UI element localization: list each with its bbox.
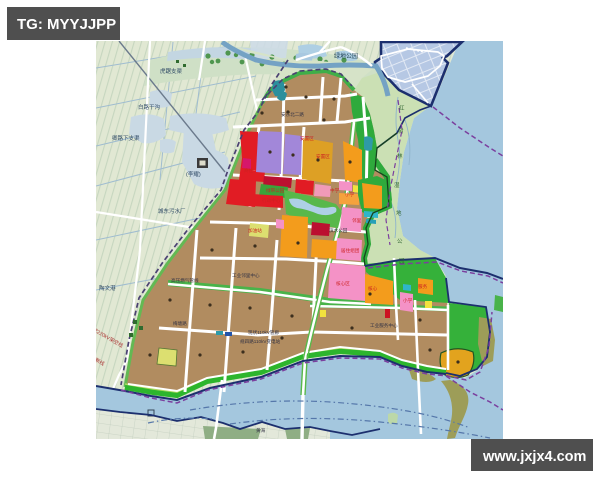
svg-text:现状110kV管廊: 现状110kV管廊 xyxy=(248,329,279,336)
svg-text:小学: 小学 xyxy=(403,297,413,304)
svg-text:虎踞支渠: 虎踞支渠 xyxy=(160,67,183,75)
svg-text:红: 红 xyxy=(399,104,405,112)
svg-text:TG: MYYJJPP: TG: MYYJJPP xyxy=(17,16,116,33)
svg-text:园: 园 xyxy=(399,258,405,265)
svg-text:黄海: 黄海 xyxy=(256,427,266,434)
svg-text:白路干沟: 白路干沟 xyxy=(138,103,161,111)
svg-text:行政中心: 行政中心 xyxy=(262,197,281,204)
svg-text:加油站: 加油站 xyxy=(248,227,262,234)
svg-text:工业邻里中心: 工业邻里中心 xyxy=(232,272,260,279)
svg-text:核心: 核心 xyxy=(368,285,378,292)
svg-text:陶文港: 陶文港 xyxy=(99,284,116,292)
svg-text:高压燃气管线: 高压燃气管线 xyxy=(171,277,199,284)
svg-text:湿: 湿 xyxy=(394,181,400,189)
svg-text:公: 公 xyxy=(397,239,403,245)
svg-text:中学: 中学 xyxy=(330,187,340,194)
svg-text:梅塘路: 梅塘路 xyxy=(173,320,187,327)
svg-text:核心区: 核心区 xyxy=(336,280,350,287)
svg-text:居住组团: 居住组团 xyxy=(341,247,360,254)
svg-text:安东北二路: 安东北二路 xyxy=(281,111,304,118)
svg-text:树: 树 xyxy=(398,127,404,135)
svg-text:城东污水厂: 城东污水厂 xyxy=(158,207,186,215)
svg-text:卿路下支渠: 卿路下支渠 xyxy=(112,134,140,142)
svg-text:服务: 服务 xyxy=(418,283,428,290)
svg-text:(李耀): (李耀) xyxy=(186,170,201,178)
svg-text:绿地公园: 绿地公园 xyxy=(334,52,358,60)
svg-text:滨水公园: 滨水公园 xyxy=(329,227,348,234)
svg-text:规四路110kV变电站: 规四路110kV变电站 xyxy=(240,338,281,345)
svg-text:小学: 小学 xyxy=(345,191,355,198)
svg-text:绿带公园: 绿带公园 xyxy=(266,187,285,194)
svg-text:www.jxjx4.com: www.jxjx4.com xyxy=(482,449,586,465)
svg-text:工业服务中心: 工业服务中心 xyxy=(370,322,398,329)
svg-text:林: 林 xyxy=(397,152,403,160)
svg-text:安置区: 安置区 xyxy=(300,135,314,142)
svg-text:邻里: 邻里 xyxy=(352,217,362,224)
svg-text:地: 地 xyxy=(396,209,402,217)
svg-text:商住: 商住 xyxy=(244,167,254,174)
